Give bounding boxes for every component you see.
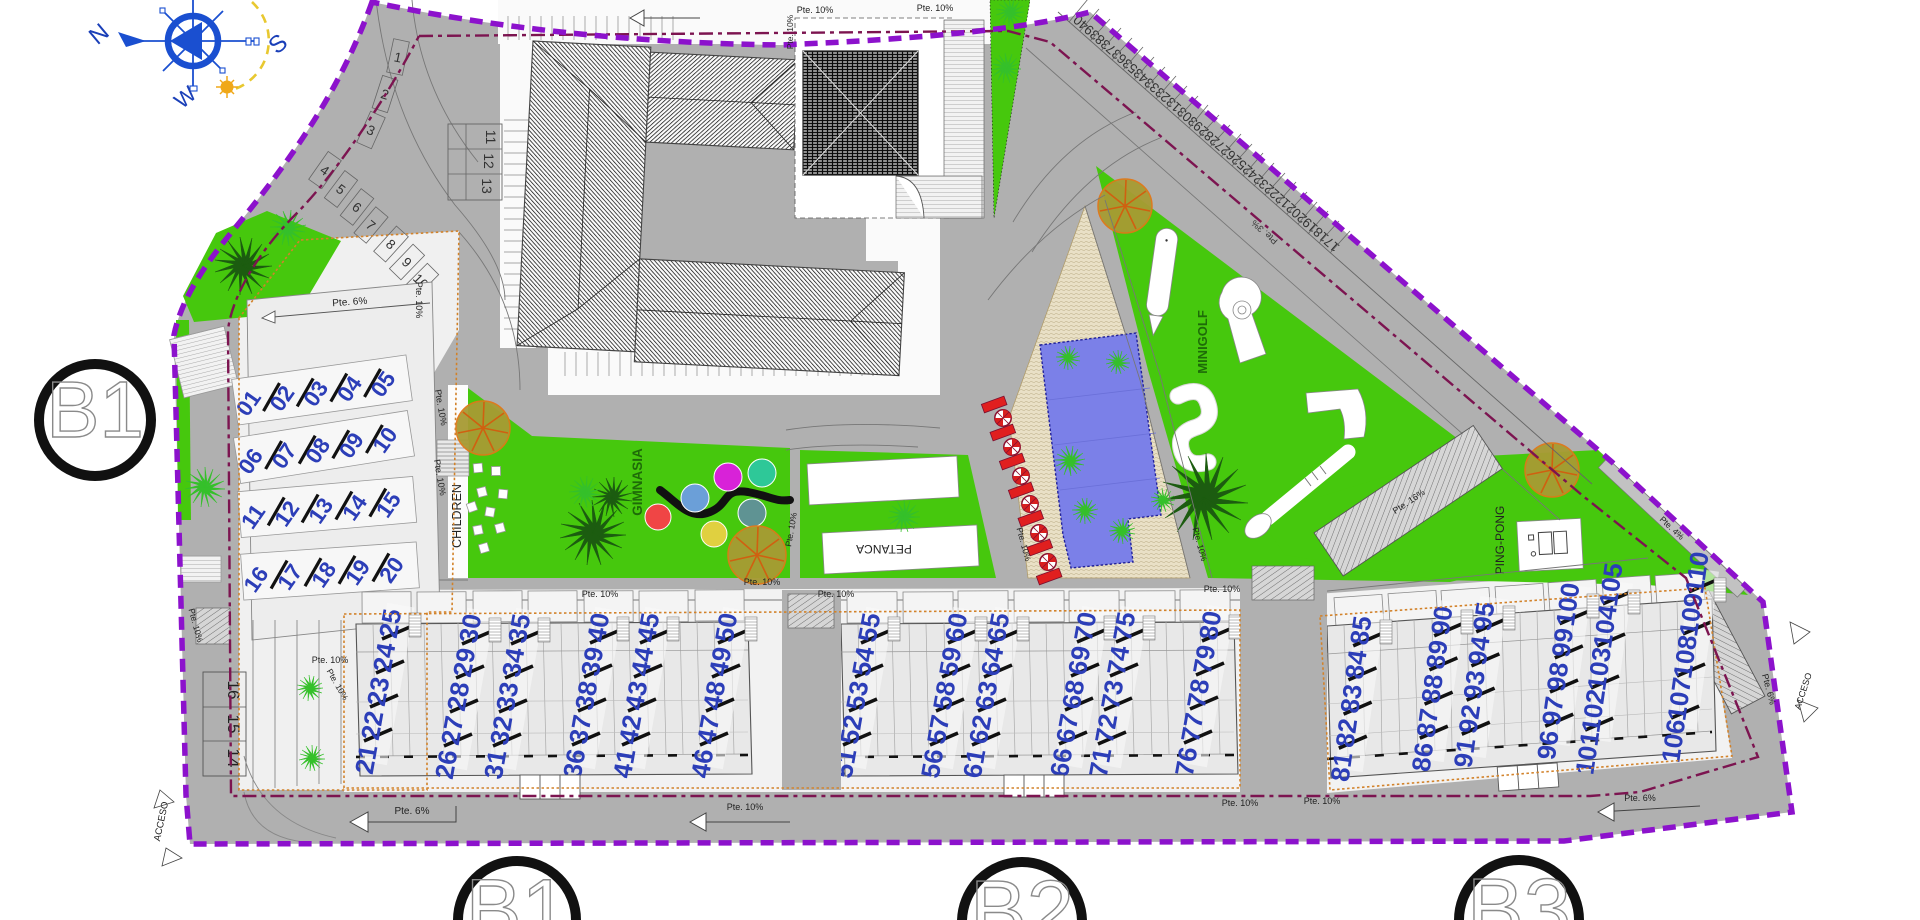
svg-text:103: 103 (1581, 645, 1617, 692)
svg-text:106: 106 (1655, 717, 1691, 764)
svg-text:GIMNASIA: GIMNASIA (630, 448, 645, 516)
svg-text:Pte. 10%: Pte. 10% (312, 655, 349, 665)
svg-text:56: 56 (915, 747, 950, 781)
svg-text:93: 93 (1457, 668, 1491, 701)
svg-text:104: 104 (1587, 603, 1623, 651)
svg-text:28: 28 (441, 680, 476, 714)
svg-text:98: 98 (1541, 660, 1575, 693)
svg-text:97: 97 (1536, 694, 1570, 727)
svg-text:66: 66 (1044, 746, 1079, 780)
svg-text:72: 72 (1089, 712, 1124, 746)
svg-text:89: 89 (1420, 638, 1454, 671)
svg-text:Pte. 10%: Pte. 10% (1304, 796, 1341, 806)
svg-text:82: 82 (1329, 717, 1363, 750)
svg-text:Pte. 10%: Pte. 10% (1204, 584, 1241, 594)
svg-text:87: 87 (1410, 707, 1444, 740)
svg-text:40: 40 (581, 611, 616, 645)
svg-text:57: 57 (921, 713, 956, 747)
svg-text:53: 53 (840, 679, 875, 713)
svg-text:44: 44 (625, 644, 660, 678)
svg-text:13: 13 (479, 178, 495, 194)
svg-text:35: 35 (502, 612, 537, 646)
svg-text:69: 69 (1062, 644, 1097, 678)
svg-text:62: 62 (963, 713, 998, 747)
svg-text:Pte. 6%: Pte. 6% (1624, 793, 1656, 803)
svg-text:77: 77 (1175, 711, 1210, 745)
svg-text:34: 34 (496, 645, 531, 679)
svg-text:29: 29 (447, 646, 482, 680)
svg-text:65: 65 (981, 611, 1016, 645)
svg-text:71: 71 (1083, 746, 1118, 780)
svg-text:Pte. 10%: Pte. 10% (917, 3, 954, 13)
svg-text:16: 16 (224, 681, 243, 700)
svg-text:27: 27 (435, 714, 470, 748)
svg-text:68: 68 (1056, 678, 1091, 712)
svg-text:Pte. 10%: Pte. 10% (582, 589, 619, 599)
svg-text:12: 12 (481, 153, 497, 169)
svg-text:25: 25 (373, 607, 408, 641)
svg-text:33: 33 (490, 680, 525, 714)
svg-text:31: 31 (478, 748, 513, 782)
svg-text:B2: B2 (970, 864, 1074, 920)
svg-text:PING-PONG: PING-PONG (1493, 506, 1507, 575)
svg-text:107: 107 (1661, 675, 1697, 722)
svg-text:92: 92 (1452, 703, 1486, 736)
svg-text:64: 64 (975, 644, 1010, 678)
svg-text:55: 55 (852, 611, 887, 645)
svg-text:21: 21 (349, 743, 384, 777)
svg-text:109: 109 (1673, 591, 1709, 638)
svg-text:Pte. 10%: Pte. 10% (785, 14, 795, 49)
svg-text:26: 26 (429, 748, 464, 782)
svg-text:99: 99 (1545, 626, 1579, 659)
svg-text:Pte. 10%: Pte. 10% (818, 589, 855, 599)
svg-text:50: 50 (709, 611, 744, 645)
svg-text:91: 91 (1448, 737, 1482, 770)
svg-text:32: 32 (484, 714, 519, 748)
svg-text:76: 76 (1169, 745, 1204, 779)
svg-text:Pte. 10%: Pte. 10% (744, 577, 781, 587)
svg-text:75: 75 (1107, 610, 1142, 644)
svg-text:59: 59 (933, 645, 968, 679)
svg-text:80: 80 (1193, 609, 1228, 643)
svg-text:78: 78 (1181, 677, 1216, 711)
svg-text:60: 60 (939, 611, 974, 645)
svg-text:43: 43 (619, 679, 654, 713)
svg-text:48: 48 (697, 679, 732, 713)
svg-text:Pte. 10%: Pte. 10% (414, 282, 424, 319)
svg-text:Pte. 6%: Pte. 6% (394, 806, 429, 817)
svg-text:88: 88 (1415, 672, 1449, 705)
svg-text:100: 100 (1550, 581, 1586, 628)
svg-text:45: 45 (631, 611, 666, 645)
svg-text:83: 83 (1334, 682, 1368, 715)
svg-text:B1: B1 (466, 862, 569, 920)
svg-text:70: 70 (1068, 610, 1103, 644)
svg-text:84: 84 (1339, 648, 1373, 681)
svg-text:PETANCA: PETANCA (856, 542, 912, 556)
svg-text:67: 67 (1050, 712, 1085, 746)
svg-text:B1: B1 (46, 365, 144, 454)
svg-text:38: 38 (569, 679, 604, 713)
svg-text:22: 22 (355, 709, 390, 743)
svg-text:105: 105 (1593, 561, 1629, 608)
svg-text:49: 49 (703, 645, 738, 679)
svg-text:63: 63 (969, 679, 1004, 713)
svg-text:73: 73 (1095, 678, 1130, 712)
svg-text:CHILDREN: CHILDREN (450, 484, 464, 548)
svg-text:37: 37 (563, 713, 598, 747)
svg-text:Pte. 10%: Pte. 10% (1222, 798, 1259, 808)
svg-text:102: 102 (1575, 687, 1611, 734)
svg-text:86: 86 (1406, 741, 1440, 774)
svg-text:90: 90 (1425, 604, 1459, 637)
svg-text:74: 74 (1101, 643, 1136, 677)
svg-text:42: 42 (613, 713, 648, 747)
svg-text:41: 41 (607, 747, 642, 781)
svg-text:110: 110 (1679, 550, 1715, 596)
svg-text:47: 47 (691, 713, 726, 747)
svg-text:39: 39 (575, 645, 610, 679)
svg-text:24: 24 (367, 640, 402, 674)
svg-text:101: 101 (1569, 729, 1605, 776)
svg-text:96: 96 (1531, 729, 1565, 762)
svg-text:108: 108 (1667, 633, 1703, 680)
svg-text:B3: B3 (1467, 862, 1571, 920)
svg-text:58: 58 (927, 679, 962, 713)
svg-text:54: 54 (846, 644, 881, 678)
svg-text:23: 23 (361, 675, 396, 709)
svg-text:94: 94 (1462, 634, 1496, 667)
svg-text:Pte. 10%: Pte. 10% (797, 5, 834, 15)
svg-text:85: 85 (1344, 614, 1378, 647)
svg-text:11: 11 (483, 130, 499, 145)
svg-text:30: 30 (453, 612, 488, 646)
svg-text:79: 79 (1187, 643, 1222, 677)
svg-text:46: 46 (685, 747, 720, 781)
svg-text:MINIGOLF: MINIGOLF (1195, 310, 1210, 374)
svg-text:61: 61 (957, 747, 992, 781)
svg-text:Pte. 10%: Pte. 10% (727, 802, 764, 812)
